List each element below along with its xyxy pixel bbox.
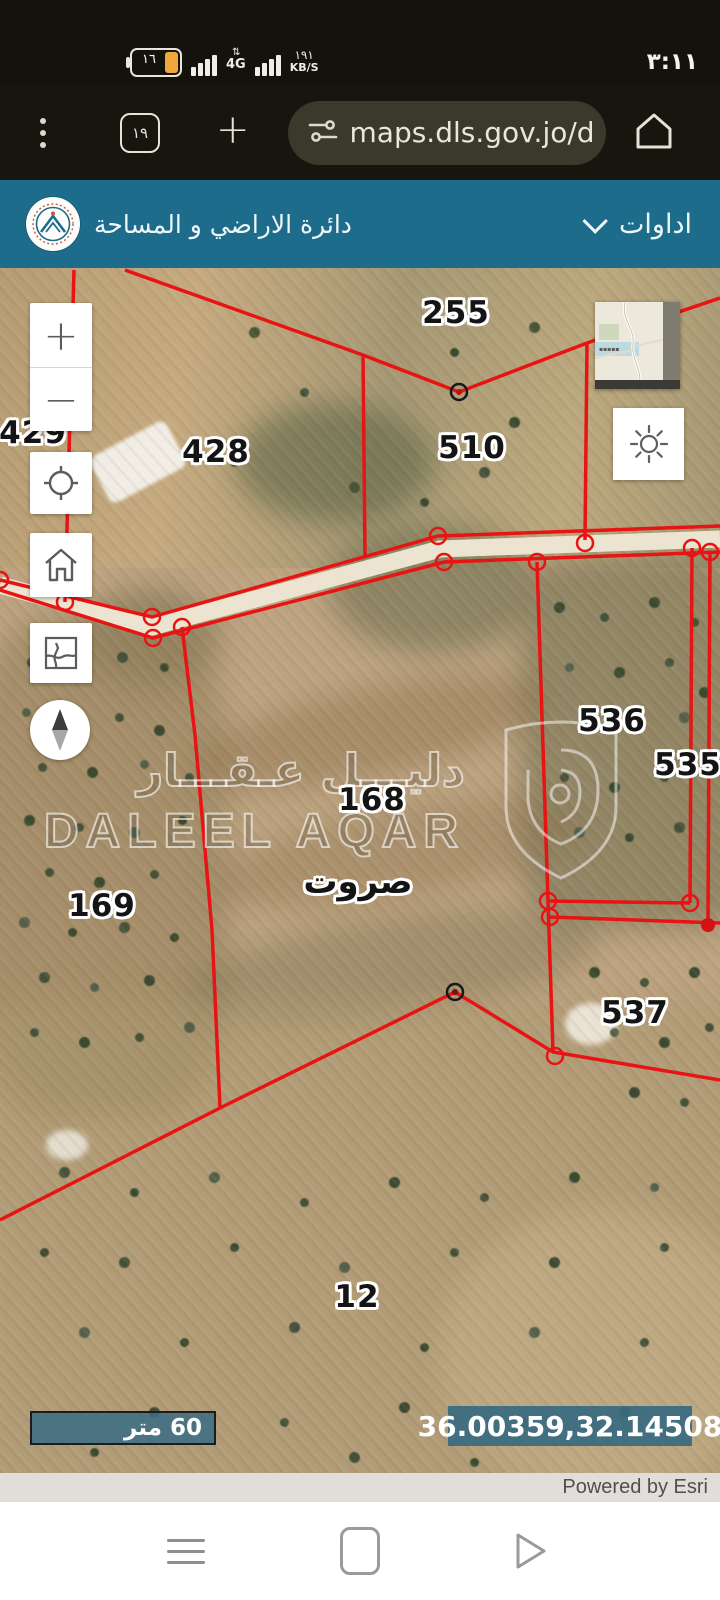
zoom-widget: + − [30, 303, 92, 431]
locate-button[interactable] [30, 452, 92, 514]
battery-percent: ١٦ [136, 52, 162, 67]
zoom-in-button[interactable]: + [30, 304, 92, 367]
speed-value: ١٩١ [294, 49, 313, 63]
signal-bars-icon-2 [255, 55, 281, 77]
compass[interactable] [30, 700, 90, 760]
signal-bars-icon [191, 55, 217, 77]
url-bar[interactable]: maps.dls.gov.jo/d [288, 101, 606, 165]
new-tab-button[interactable]: + [216, 130, 250, 136]
page-title: دائرة الاراضي و المساحة [94, 210, 352, 239]
scale-bar: 60 متر [30, 1411, 216, 1445]
battery-nub [126, 57, 130, 68]
coordinates-readout: 36.00359,32.14508 [448, 1406, 692, 1446]
thumb-tiny-label: ▪▪▪▪▪ [599, 346, 619, 353]
battery-icon: ١٦ [130, 48, 182, 77]
back-nav-icon[interactable] [494, 1502, 566, 1600]
parcel-label-510: 510 [438, 430, 506, 466]
map-attribution: Powered by Esri [0, 1473, 720, 1502]
system-navbar [0, 1502, 720, 1600]
recents-menu-icon[interactable] [150, 1502, 222, 1600]
parcel-label-168: 168 [338, 782, 406, 818]
tools-menu-label: اداوات [619, 209, 692, 240]
clock: ٣:١١ [647, 49, 698, 85]
parcel-label-535: 535 [654, 747, 720, 783]
chevron-down-icon [582, 208, 607, 233]
network-speed: ١٩١ KB/S [290, 49, 319, 77]
home-extent-button[interactable] [30, 533, 92, 597]
network-type-badge: ⇅ 4G [226, 48, 246, 77]
place-label-sarut: صروت [303, 862, 412, 902]
status-bar: ١٦ ⇅ 4G ١٩١ KB/S ٣:١١ [0, 0, 720, 85]
phone-screen: ١٦ ⇅ 4G ١٩١ KB/S ٣:١١ ١٩ + [0, 0, 720, 1600]
tools-menu[interactable]: اداوات [589, 209, 692, 240]
parcel-label-428: 428 [182, 434, 250, 470]
browser-menu-icon[interactable] [40, 118, 48, 148]
parcel-label-169: 169 [68, 888, 136, 924]
scale-bar-label: 60 متر [124, 1415, 202, 1441]
parcel-label-255: 255 [422, 295, 490, 331]
battery-fill [165, 52, 178, 73]
tab-counter-button[interactable]: ١٩ [120, 113, 160, 153]
network-type-label: 4G [226, 58, 246, 71]
parcel-label-537: 537 [601, 995, 669, 1031]
tab-count: ١٩ [132, 124, 148, 142]
overview-map-thumbnail[interactable]: ▪▪▪▪▪ [595, 302, 680, 389]
url-text: maps.dls.gov.jo/d [350, 116, 595, 149]
zoom-out-button[interactable]: − [30, 368, 92, 431]
parcel-label-12: 12 [334, 1279, 379, 1315]
app-header: دائرة الاراضي و المساحة اداوات [0, 180, 720, 268]
map-canvas[interactable]: دليـــل عـقـــار DALEEL AQAR 255 429 428… [0, 268, 720, 1473]
browser-home-icon[interactable] [632, 109, 676, 157]
parcel-label-536: 536 [578, 703, 646, 739]
browser-toolbar: ١٩ + maps.dls.gov.jo/d [0, 85, 720, 180]
dls-logo [26, 197, 80, 251]
default-map-view-button[interactable] [30, 623, 92, 683]
speed-unit: KB/S [290, 62, 319, 75]
status-icons: ١٦ ⇅ 4G ١٩١ KB/S [130, 48, 319, 85]
basemap-brightness-button[interactable] [613, 408, 684, 480]
site-settings-icon[interactable] [308, 116, 338, 150]
home-nav-icon[interactable] [324, 1502, 396, 1600]
